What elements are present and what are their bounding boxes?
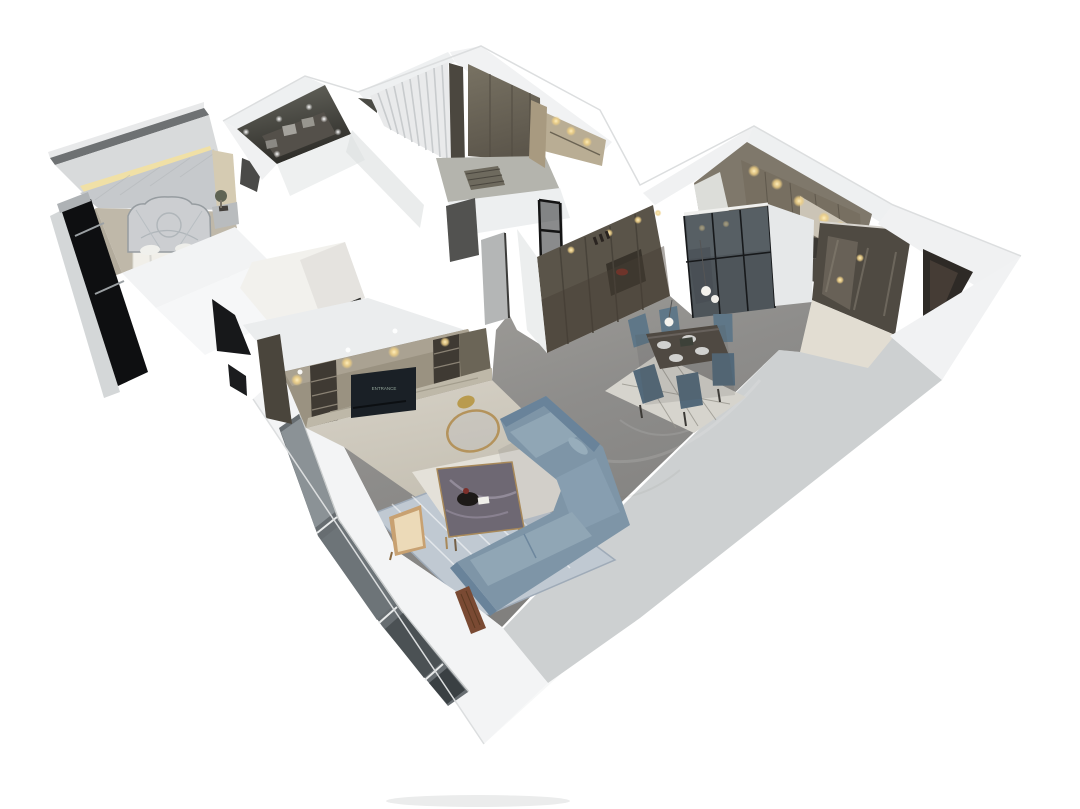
svg-text:ENTRANCE: ENTRANCE (372, 386, 397, 391)
